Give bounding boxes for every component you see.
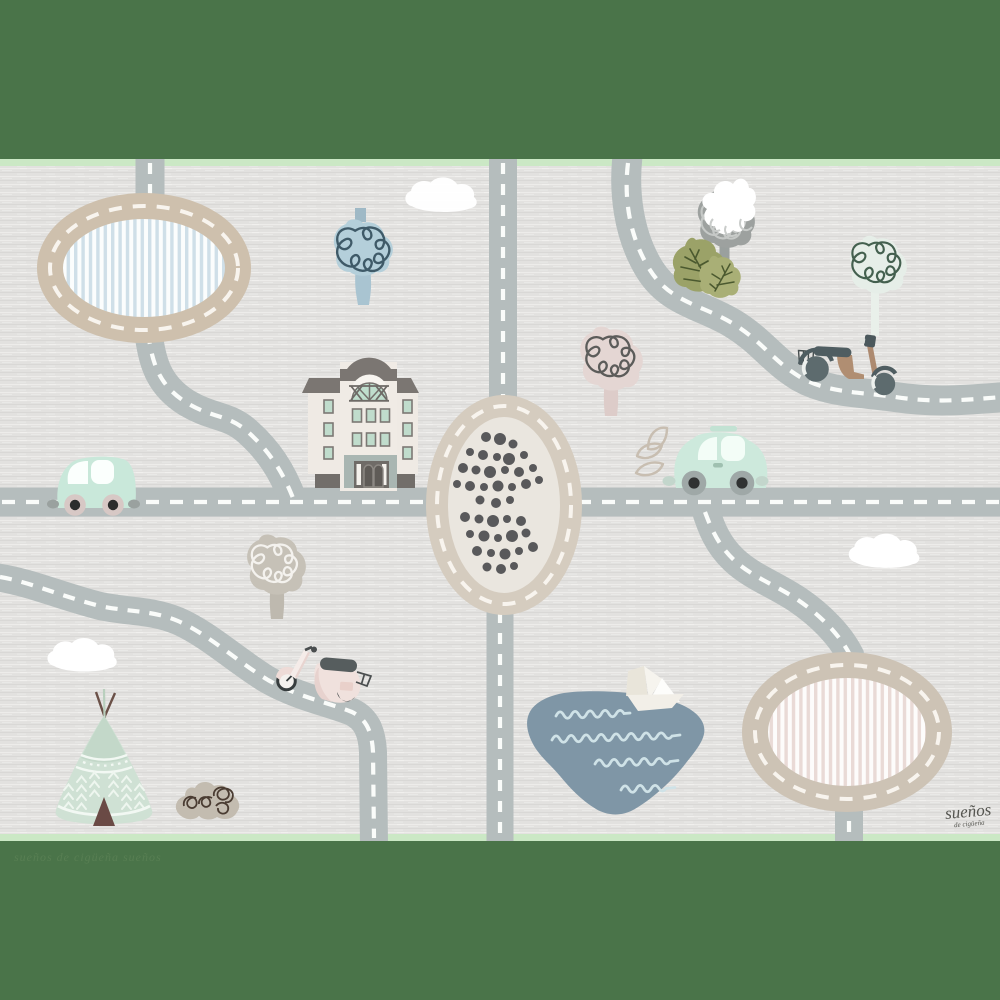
svg-text:sueños de cigüeña sueños: sueños de cigüeña sueños [14,850,162,864]
